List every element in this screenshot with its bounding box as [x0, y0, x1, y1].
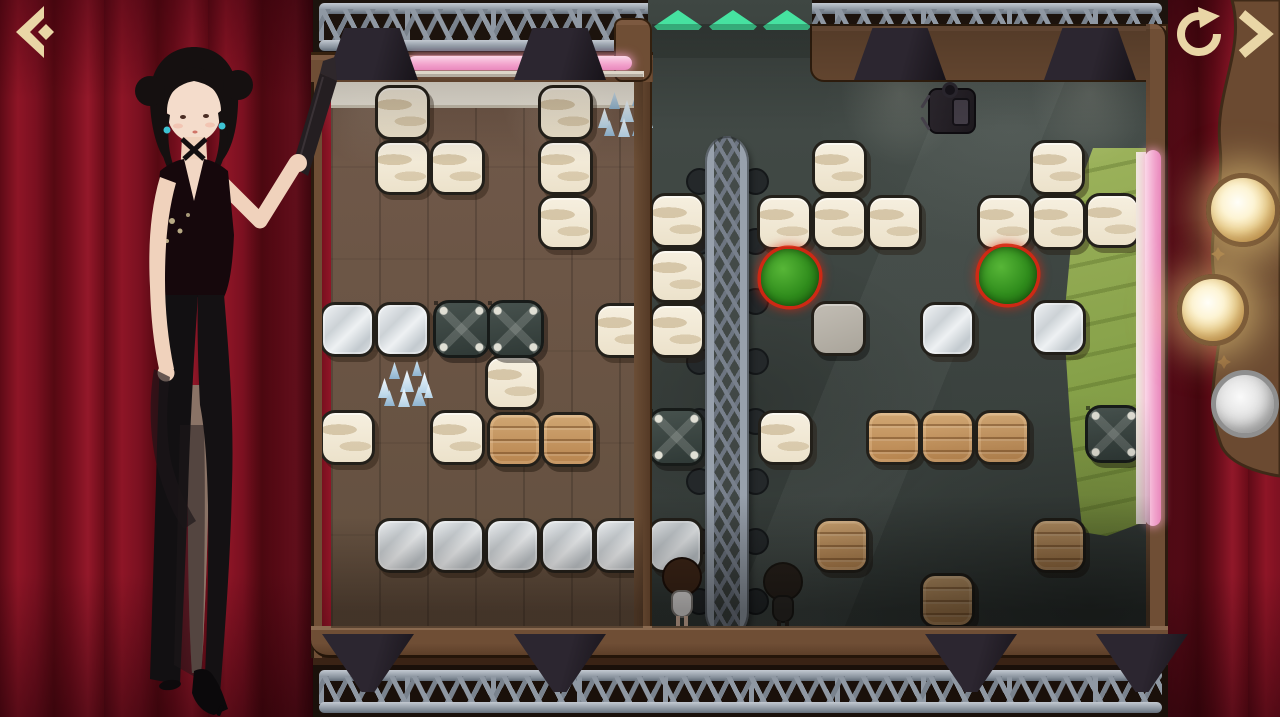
- restart-button[interactable]: [1172, 6, 1228, 62]
- progress-lamp-lit: [1177, 274, 1249, 346]
- game-stage: [0, 0, 1280, 717]
- back-arrow-icon: [8, 4, 58, 60]
- back-button[interactable]: [8, 4, 58, 60]
- next-button[interactable]: [1236, 10, 1274, 58]
- progress-lamp-lit: [1206, 173, 1280, 247]
- progress-lamps: [0, 0, 1280, 717]
- progress-lamp-unlit: [1211, 370, 1279, 438]
- restart-icon: [1172, 6, 1228, 62]
- next-chevron-icon: [1236, 10, 1274, 58]
